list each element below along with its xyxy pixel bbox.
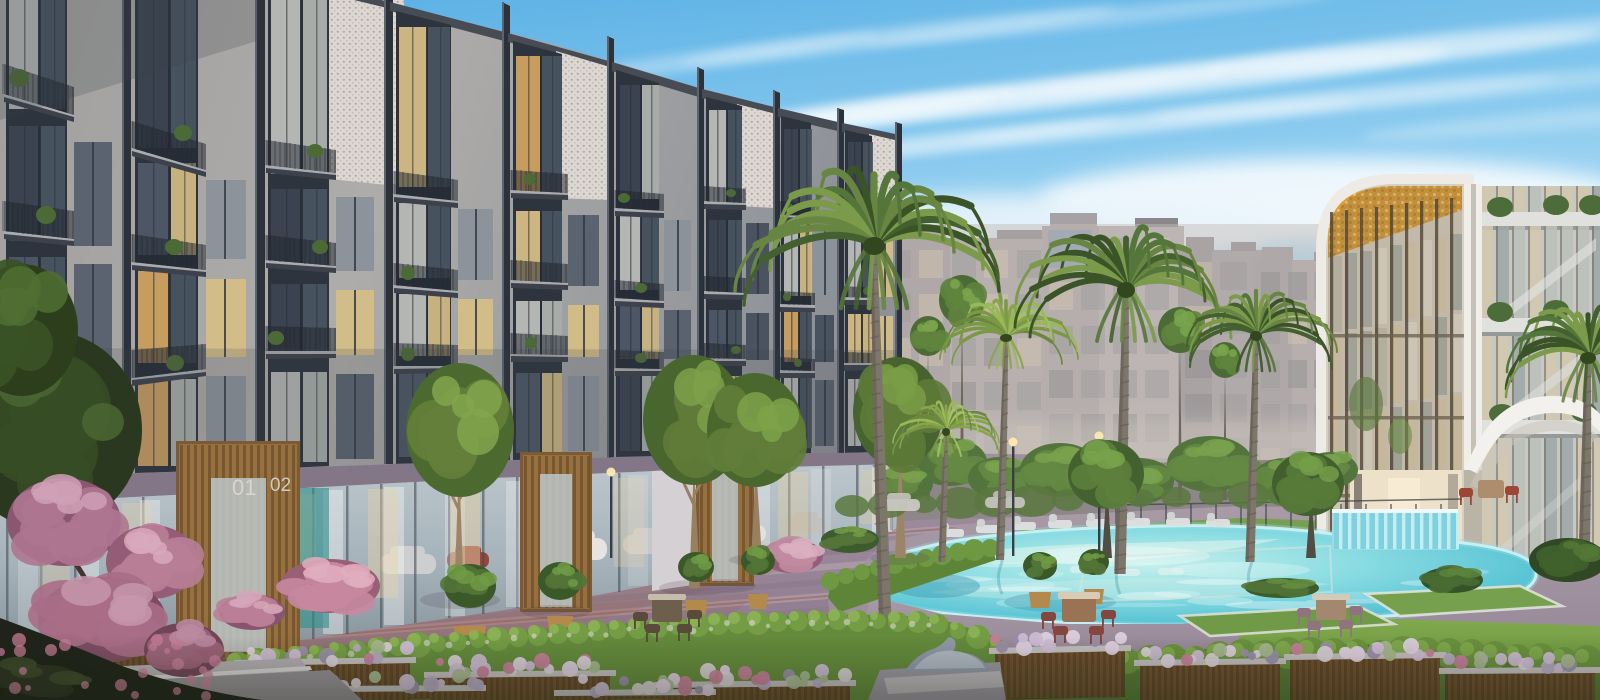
svg-text:01: 01 [232,475,256,500]
svg-text:02: 02 [270,475,291,496]
